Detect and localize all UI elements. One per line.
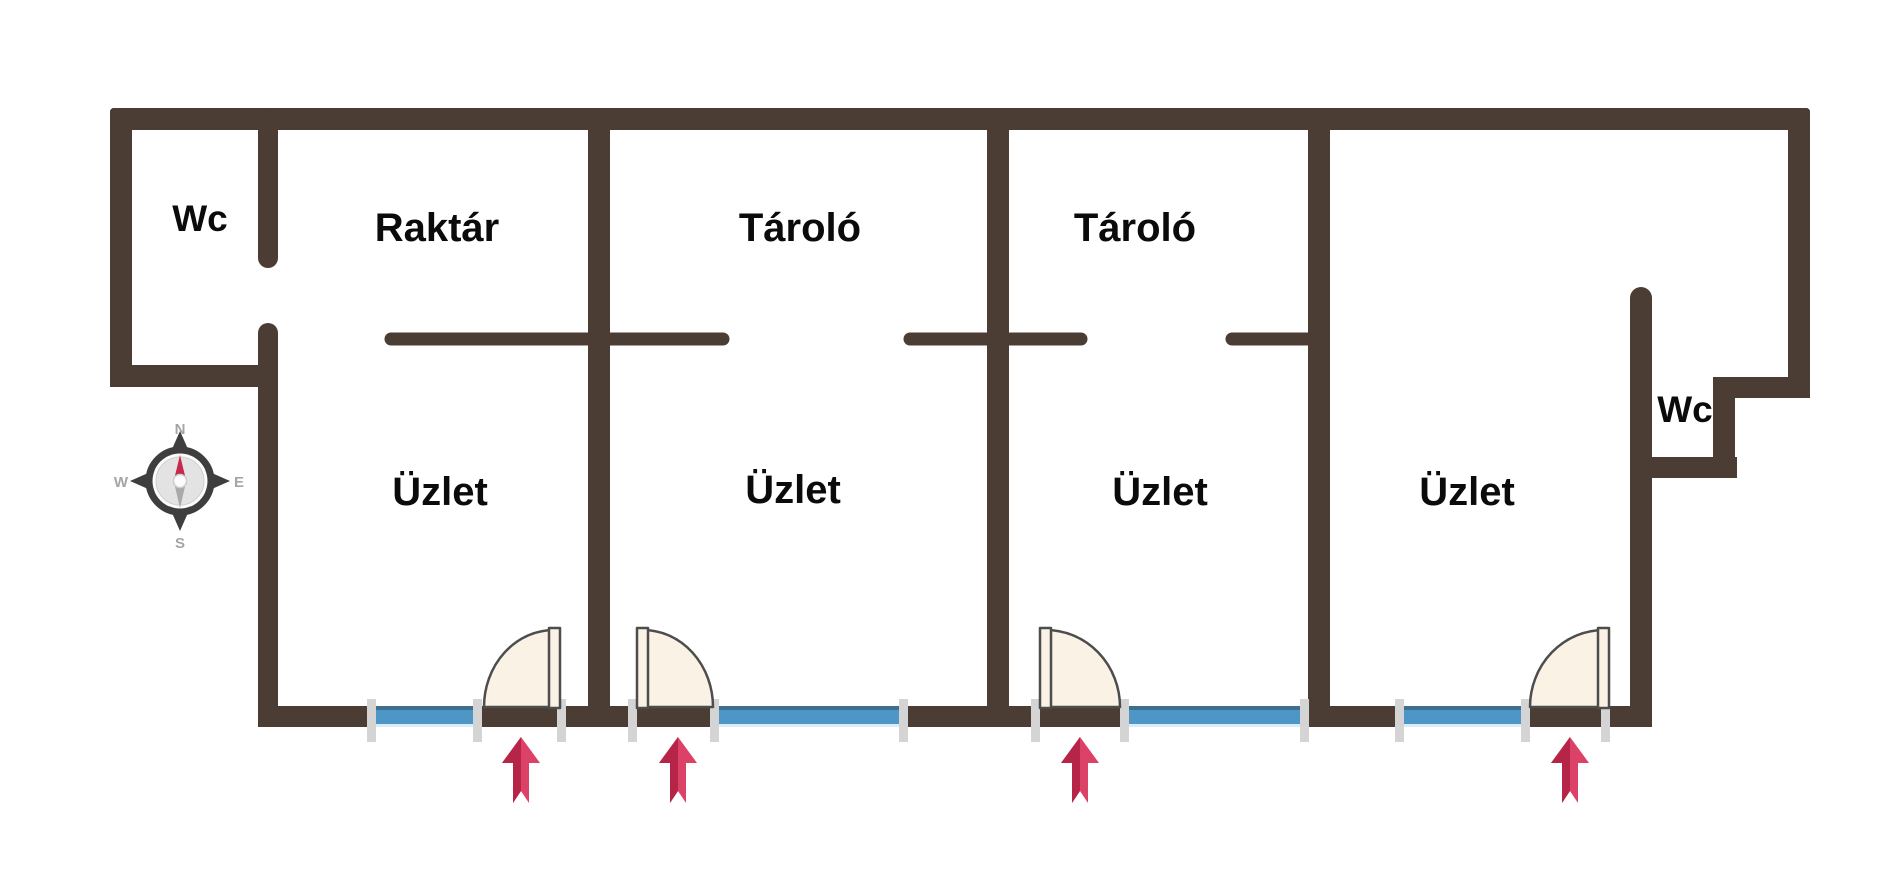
jamb-window1-left — [367, 699, 376, 742]
window-1 — [376, 706, 473, 727]
floor-plan-svg: N E S W Wc Raktár Tároló Tároló Üzlet Üz… — [0, 0, 1880, 880]
entrance-arrow-4 — [1551, 737, 1589, 803]
door-2 — [637, 628, 713, 708]
entrance-arrow-1 — [502, 737, 540, 803]
wall-divider-2 — [987, 128, 1009, 727]
room-label-uzlet-3: Üzlet — [1112, 469, 1208, 514]
door-4 — [1530, 628, 1609, 708]
doors — [484, 628, 1609, 708]
room-label-raktar: Raktár — [375, 206, 500, 250]
wall-bottom-4 — [1309, 706, 1399, 727]
jamb-window3-right — [1300, 699, 1309, 742]
compass-center-dot — [174, 475, 187, 488]
room-label-uzlet-2: Üzlet — [745, 467, 841, 512]
room-label-uzlet-4: Üzlet — [1419, 469, 1515, 514]
compass-label-north: N — [175, 421, 186, 438]
wall-divider-3 — [1308, 128, 1330, 727]
room-label-tarolo-1: Tároló — [739, 206, 861, 250]
entrance-arrow-2 — [659, 737, 697, 803]
room-label-wc-right: Wc — [1657, 389, 1713, 430]
wall-wc-right-bottom — [1650, 457, 1737, 478]
jamb-door2-left — [628, 699, 637, 742]
wall-right — [1788, 108, 1810, 398]
room-label-wc-left: Wc — [172, 198, 228, 239]
jamb-window2-right — [899, 699, 908, 742]
room-label-uzlet-1: Üzlet — [392, 469, 488, 514]
entrance-arrows — [502, 737, 1589, 803]
entrance-arrow-3 — [1061, 737, 1099, 803]
compass-label-south: S — [175, 535, 185, 552]
jamb-window1-right — [473, 699, 482, 742]
door-3 — [1040, 628, 1120, 708]
compass-rose: N E S W — [114, 421, 244, 552]
compass-label-west: W — [114, 474, 129, 491]
wall-bottom-1 — [258, 706, 374, 727]
jamb-door3-left — [1031, 699, 1040, 742]
room-labels: Wc Raktár Tároló Tároló Üzlet Üzlet Üzle… — [172, 198, 1713, 514]
wall-bottom-2 — [480, 706, 718, 727]
wall-bottom-3 — [906, 706, 1124, 727]
door-1 — [484, 628, 560, 708]
window-3 — [1129, 706, 1300, 727]
wall-top — [110, 108, 1810, 130]
wall-bottom-5 — [1528, 706, 1652, 727]
jamb-window3-left — [1120, 699, 1129, 742]
window-4 — [1404, 706, 1521, 727]
wall-divider-1 — [588, 128, 610, 727]
window-2 — [719, 706, 899, 727]
compass-label-east: E — [234, 474, 244, 491]
floor-plan-page: N E S W Wc Raktár Tároló Tároló Üzlet Üz… — [0, 0, 1880, 880]
jamb-window4-left — [1395, 699, 1404, 742]
jamb-window4-right — [1521, 699, 1530, 742]
room-label-tarolo-2: Tároló — [1074, 206, 1196, 250]
wall-left-notch-bottom — [110, 365, 278, 387]
wall-left — [110, 108, 132, 387]
walls — [110, 108, 1810, 727]
